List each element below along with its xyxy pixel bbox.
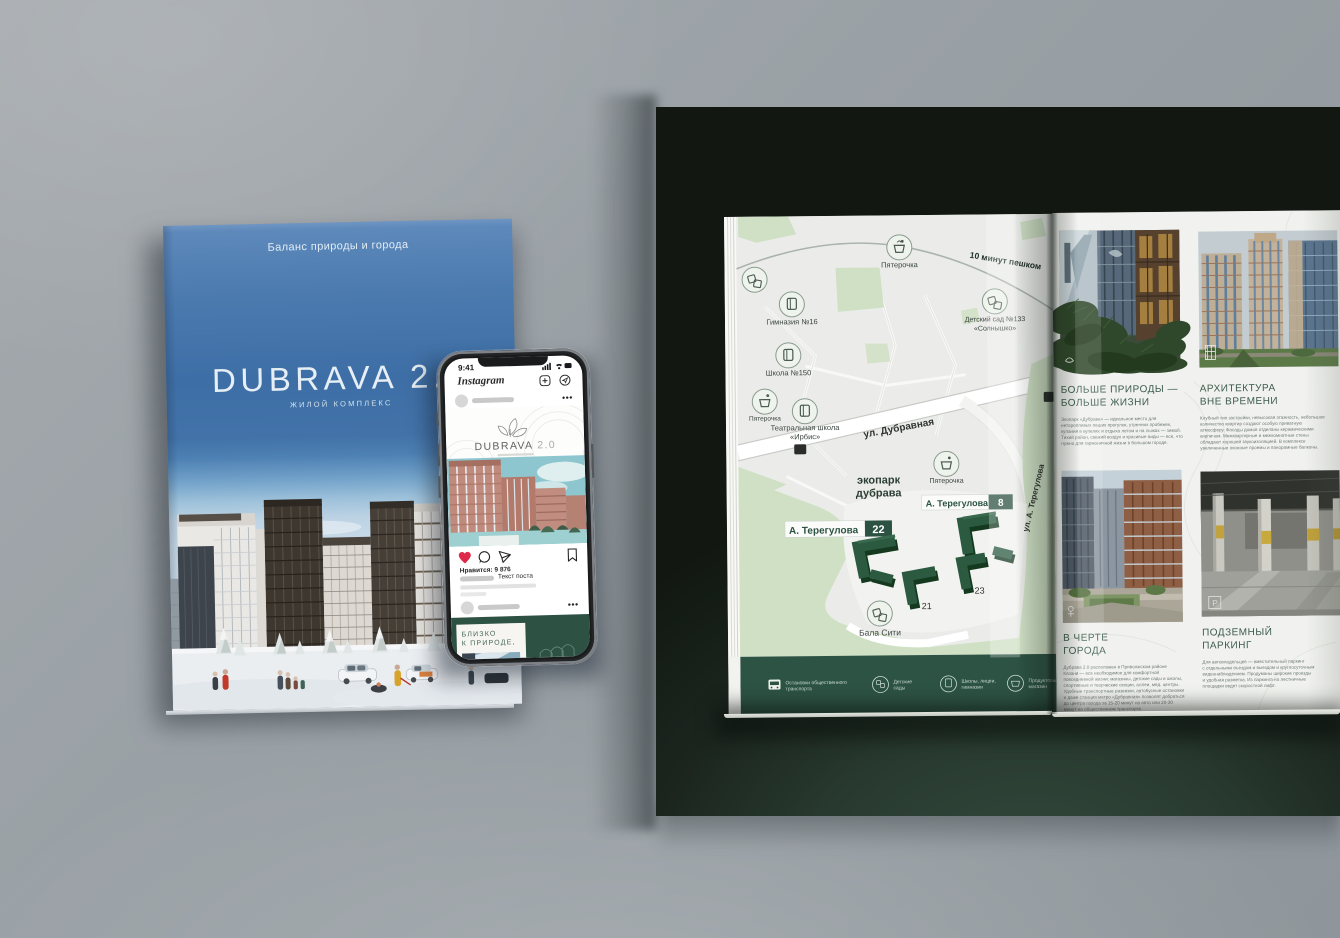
svg-text:DUBRAVA 2.0: DUBRAVA 2.0 — [474, 439, 556, 453]
svg-text:обладают хорошей звукоизоляцие: обладают хорошей звукоизоляцией. В компл… — [1200, 438, 1306, 445]
svg-text:22: 22 — [872, 524, 884, 536]
svg-text:P: P — [1212, 598, 1218, 608]
svg-text:транспорта: транспорта — [786, 686, 813, 692]
svg-text:«Ирбис»: «Ирбис» — [790, 432, 820, 441]
svg-text:количество квартир создают осо: количество квартир создают особую приват… — [1200, 421, 1302, 427]
svg-text:Пятерочка: Пятерочка — [929, 478, 963, 485]
svg-text:дубрава: дубрава — [856, 487, 903, 499]
svg-text:экопарк: экопарк — [857, 474, 901, 486]
svg-text:площадки ведет скоростной лифт: площадки ведет скоростной лифт. — [1203, 682, 1276, 689]
svg-text:А. Терегулова: А. Терегулова — [926, 498, 989, 509]
svg-text:Бала Сити: Бала Сити — [859, 627, 901, 637]
svg-text:ПОДЗЕМНЫЙ: ПОДЗЕМНЫЙ — [1202, 625, 1272, 639]
svg-text:видеонаблюдением. Продуманы ши: видеонаблюдением. Продуманы широкие прое… — [1202, 671, 1311, 677]
svg-text:Пятерочка: Пятерочка — [749, 415, 781, 422]
svg-text:А. Терегулова: А. Терегулова — [789, 525, 859, 537]
svg-text:АРХИТЕКТУРА: АРХИТЕКТУРА — [1200, 383, 1276, 395]
svg-text:Школа №150: Школа №150 — [766, 368, 812, 377]
svg-text:Для автовладельцев — вместител: Для автовладельцев — вместительный парки… — [1202, 658, 1305, 665]
svg-text:23: 23 — [975, 586, 985, 596]
svg-text:и удобная разметка. Из паркинг: и удобная разметка. Из паркинга на лестн… — [1202, 677, 1306, 683]
svg-text:Гимназия №16: Гимназия №16 — [766, 317, 817, 326]
svg-text:ВНЕ ВРЕМЕНИ: ВНЕ ВРЕМЕНИ — [1200, 396, 1278, 408]
svg-text:Пятерочка: Пятерочка — [881, 260, 919, 269]
svg-text:сады: сады — [894, 685, 906, 691]
svg-text:ПАРКИНГ: ПАРКИНГ — [1202, 640, 1252, 651]
svg-text:кирпичом. Межквартирные и межк: кирпичом. Межквартирные и межкомнатные с… — [1200, 433, 1309, 439]
svg-text:БЛИЗКО: БЛИЗКО — [461, 631, 496, 639]
svg-text:Театральная школа: Театральная школа — [771, 423, 841, 433]
svg-text:К ПРИРОДЕ,: К ПРИРОДЕ, — [462, 639, 516, 648]
svg-text:21: 21 — [922, 601, 932, 611]
svg-text:гимназии: гимназии — [962, 685, 984, 691]
